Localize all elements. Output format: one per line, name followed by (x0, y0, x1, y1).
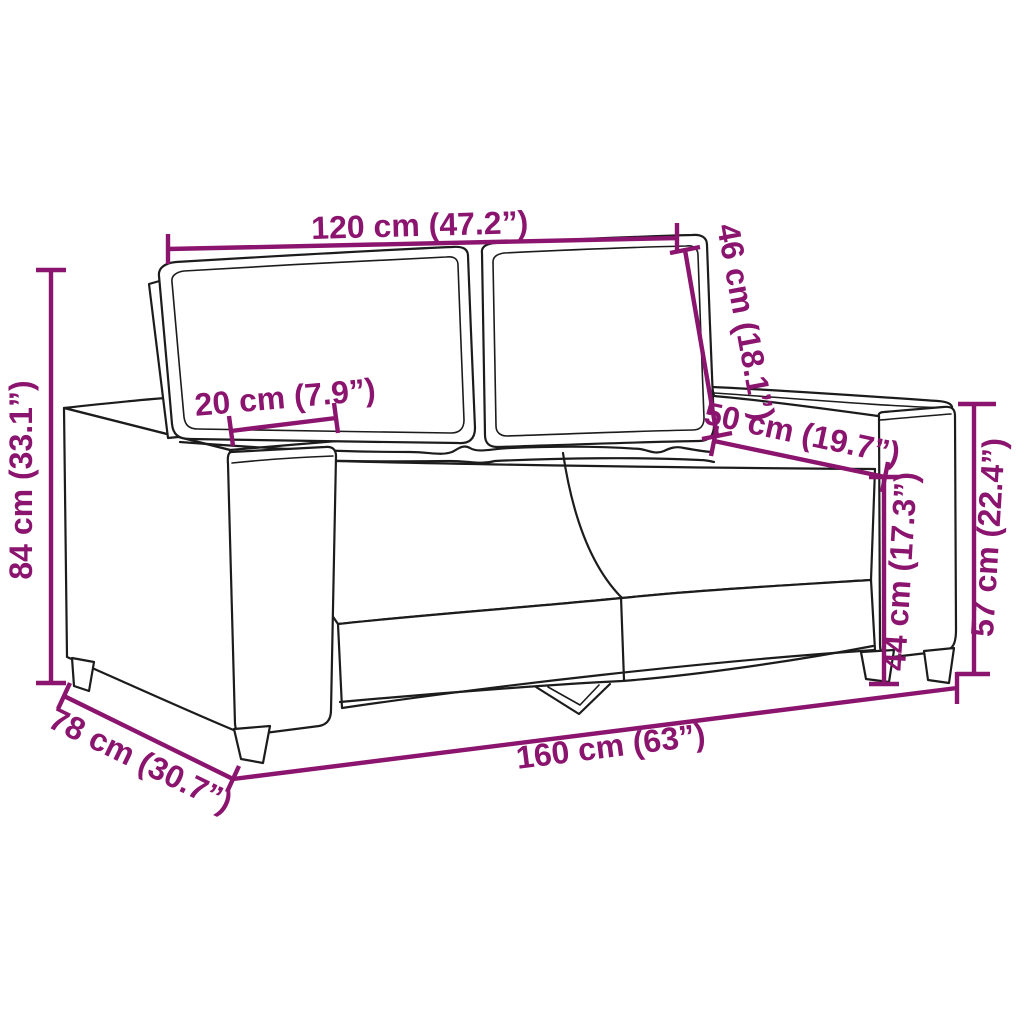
dim-overall-height: 84 cm (33.1”) (3, 270, 66, 683)
front-left-leg (234, 726, 270, 763)
dim-overall-width-label: 160 cm (63”) (514, 716, 707, 776)
dim-back-width-label: 120 cm (47.2”) (311, 204, 529, 246)
dim-overall-height-label: 84 cm (33.1”) (3, 380, 39, 579)
left-armrest-front-face (228, 447, 336, 735)
dim-overall-height-line (36, 270, 66, 683)
dim-armrest-height-label: 57 cm (22.4”) (964, 437, 1012, 638)
sofa-dimension-diagram: 120 cm (47.2”) 46 cm (18.1”) 20 cm (7.9”… (0, 0, 1024, 1024)
center-sled-leg (536, 684, 610, 714)
dim-armrest-height: 57 cm (22.4”) (956, 404, 1012, 674)
back-left-leg (72, 658, 94, 691)
dimension-diagram-page: 120 cm (47.2”) 46 cm (18.1”) 20 cm (7.9”… (0, 0, 1024, 1024)
sofa-outline-drawing (64, 235, 956, 763)
back-cushion-right (482, 235, 714, 447)
front-right-leg (924, 648, 954, 683)
